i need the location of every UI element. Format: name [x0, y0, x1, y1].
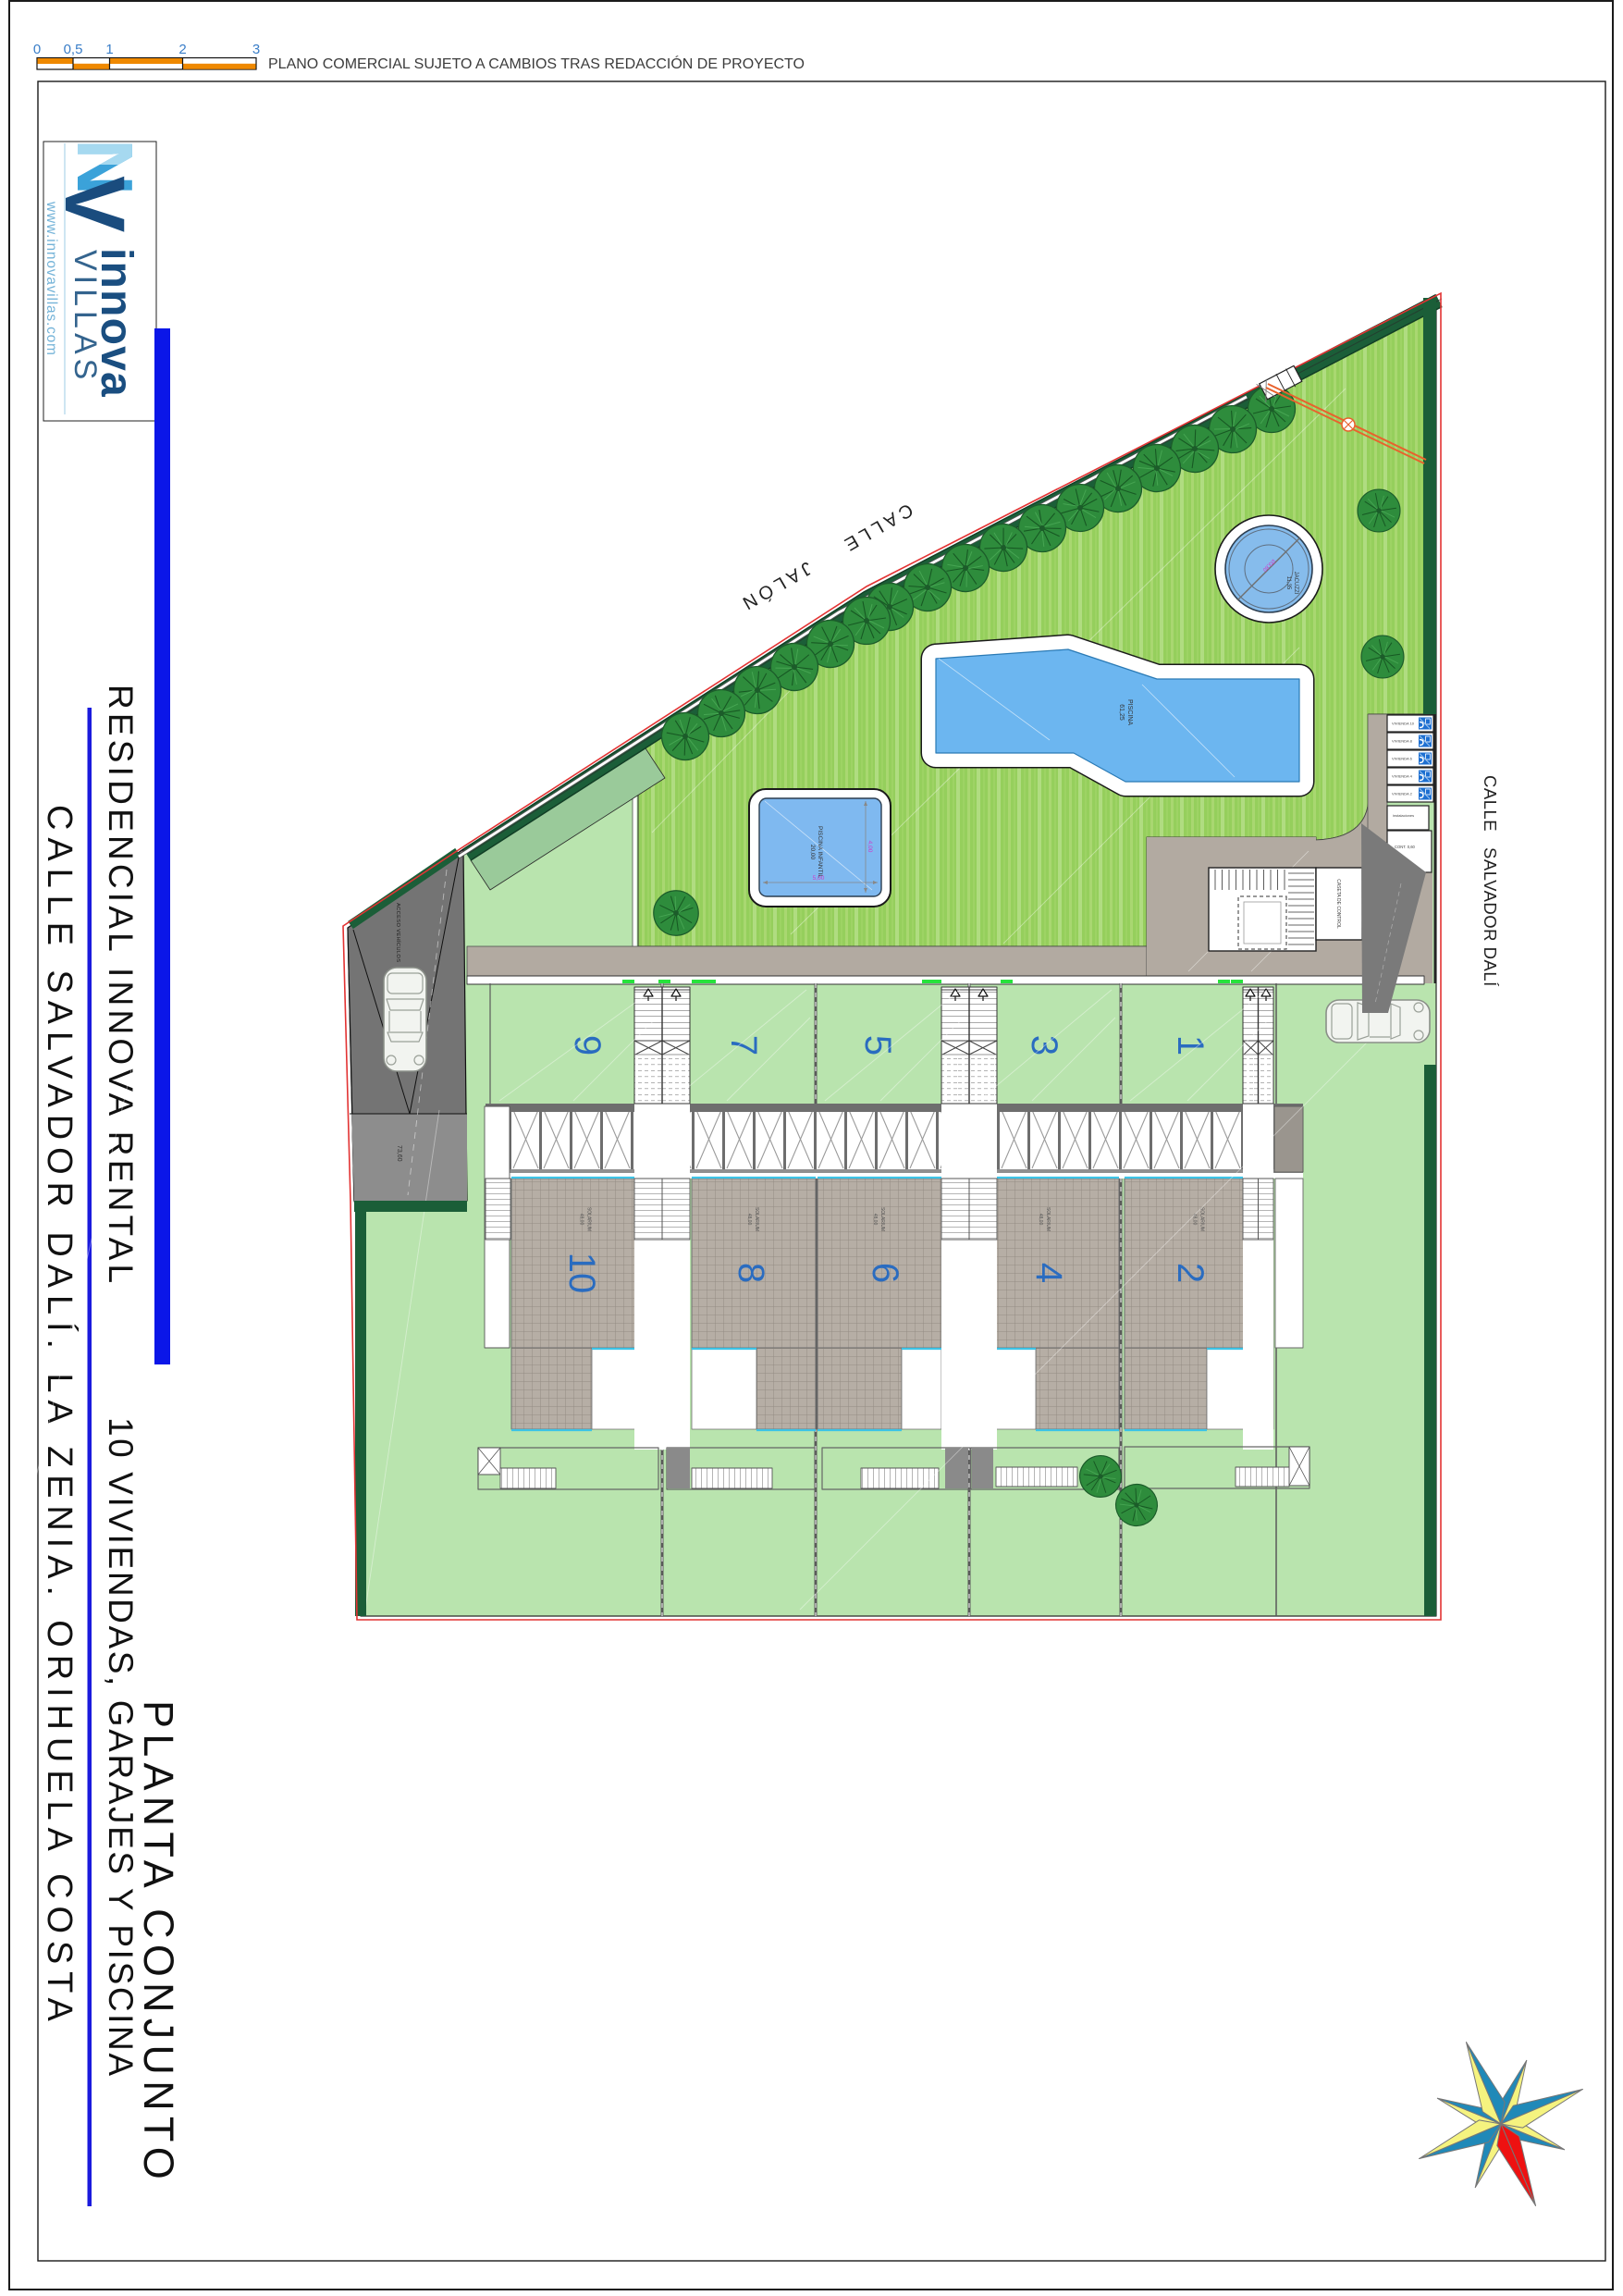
svg-text:SOLARIUM: SOLARIUM	[754, 1207, 759, 1231]
svg-text:CASETA DE CONTROL: CASETA DE CONTROL	[1335, 879, 1341, 929]
svg-text:7: 7	[723, 1035, 764, 1055]
svg-text:48,00: 48,00	[1038, 1214, 1043, 1226]
svg-text:CALLE SALVADOR DALÍ. LA ZENIA.: CALLE SALVADOR DALÍ. LA ZENIA. ORIHUELA …	[40, 805, 80, 2029]
svg-text:SOLARIUM: SOLARIUM	[879, 1207, 885, 1231]
svg-text:V: V	[47, 176, 141, 232]
svg-text:CONT. 0,60: CONT. 0,60	[1395, 845, 1416, 849]
svg-text:ACCESO VEHÍCULOS: ACCESO VEHÍCULOS	[395, 903, 401, 962]
svg-text:PLANTA CONJUNTO: PLANTA CONJUNTO	[135, 1700, 182, 2185]
svg-text:VIVIENDA 8: VIVIENDA 8	[1392, 739, 1413, 744]
svg-text:20,00: 20,00	[809, 845, 816, 860]
svg-text:1: 1	[105, 42, 113, 57]
svg-text:5,00: 5,00	[813, 875, 825, 882]
svg-text:SOLARIUM: SOLARIUM	[1045, 1207, 1051, 1231]
svg-text:10 VIVIENDAS, GARAJES Y PISCIN: 10 VIVIENDAS, GARAJES Y PISCINA	[102, 1417, 140, 2079]
svg-text:2: 2	[178, 42, 186, 57]
svg-text:0,5: 0,5	[64, 42, 83, 57]
svg-text:VIVIENDA 4: VIVIENDA 4	[1392, 774, 1413, 779]
svg-text:73,60: 73,60	[396, 1145, 402, 1162]
svg-text:61,25: 61,25	[1118, 704, 1125, 721]
svg-text:VIVIENDA 2: VIVIENDA 2	[1392, 792, 1413, 796]
svg-text:4: 4	[1028, 1263, 1069, 1283]
svg-text:PISCINA: PISCINA	[1126, 699, 1133, 725]
svg-text:8: 8	[731, 1263, 771, 1283]
svg-text:4,00: 4,00	[867, 841, 873, 853]
svg-text:48,00: 48,00	[746, 1214, 752, 1226]
svg-text:48,00: 48,00	[872, 1214, 878, 1226]
svg-text:9: 9	[567, 1035, 608, 1055]
svg-text:3: 3	[252, 42, 260, 57]
svg-text:VIVIENDA 6: VIVIENDA 6	[1392, 757, 1413, 761]
svg-text:48,00: 48,00	[579, 1214, 584, 1226]
svg-text:11,35: 11,35	[1285, 576, 1291, 590]
svg-text:instalaciones: instalaciones	[1393, 813, 1414, 818]
svg-text:PISCINA INFANTIL: PISCINA INFANTIL	[817, 826, 823, 878]
svg-text:CALLE SALVADOR DALÍ: CALLE SALVADOR DALÍ	[1481, 775, 1500, 987]
svg-text:RESIDENCIAL INNOVA RENTAL: RESIDENCIAL INNOVA RENTAL	[102, 685, 140, 1287]
svg-text:PLANO COMERCIAL SUJETO A CAMBI: PLANO COMERCIAL SUJETO A CAMBIOS TRAS RE…	[268, 55, 805, 72]
svg-text:2: 2	[1170, 1263, 1211, 1283]
svg-text:VILLAS: VILLAS	[68, 250, 103, 384]
svg-text:10: 10	[561, 1253, 602, 1294]
svg-text:www.innovavillas.com: www.innovavillas.com	[43, 201, 59, 356]
svg-text:0: 0	[33, 42, 41, 57]
svg-text:VIVIENDA 10: VIVIENDA 10	[1392, 722, 1415, 726]
svg-text:3: 3	[1024, 1035, 1064, 1055]
svg-text:JACUZZI: JACUZZI	[1293, 572, 1298, 595]
svg-text:6: 6	[865, 1263, 905, 1283]
svg-text:SOLARIUM: SOLARIUM	[1199, 1207, 1205, 1231]
svg-text:SOLARIUM: SOLARIUM	[586, 1207, 592, 1231]
